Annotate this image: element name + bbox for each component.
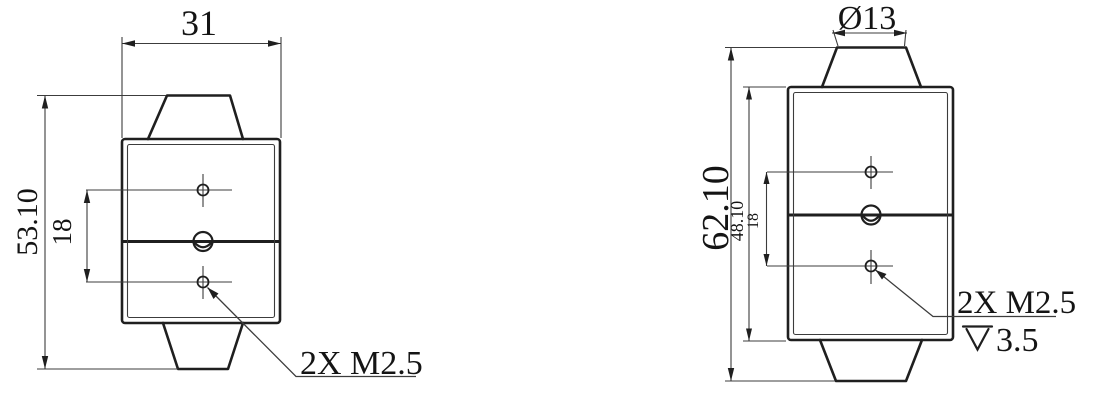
front-thread-callout: 2X M2.5 <box>300 345 423 382</box>
side-thread-depth-value: 3.5 <box>996 322 1039 359</box>
arrowhead <box>268 40 281 46</box>
side-center-hole-detent-arc <box>863 216 879 221</box>
front-view: 18 53.10 31 2X M2.5 <box>11 3 423 382</box>
front-center-hole-detent-arc <box>195 243 212 248</box>
arrowhead <box>764 254 770 266</box>
side-overall-height-dim: 62.10 <box>695 165 737 251</box>
side-hole-spacing-dim: 18 <box>745 213 762 229</box>
arrowhead <box>746 329 752 342</box>
side-thread-callout: 2X M2.5 <box>957 285 1076 321</box>
arrowhead <box>84 269 90 282</box>
depth-symbol-icon <box>963 327 992 350</box>
arrowhead <box>42 356 48 369</box>
arrowhead <box>746 87 752 100</box>
front-width-dim: 31 <box>181 3 217 43</box>
arrowhead <box>42 96 48 109</box>
arrowhead <box>84 190 90 203</box>
side-boss-diameter-dim: Ø13 <box>838 0 897 37</box>
side-view: 18 48.10 62.10 Ø13 2X M2.5 3.5 <box>695 0 1076 381</box>
extension-line <box>905 30 907 46</box>
engineering-drawing: 18 53.10 31 2X M2.5 <box>0 0 1093 400</box>
front-overall-height-dim: 53.10 <box>11 188 44 256</box>
side-top-boss-outline <box>822 48 921 88</box>
arrowhead <box>122 40 135 46</box>
arrowhead <box>728 48 734 61</box>
arrowhead <box>728 368 734 381</box>
front-bottom-boss-outline <box>163 323 243 369</box>
front-body-inner-edge <box>128 145 275 318</box>
side-bottom-boss-outline <box>820 340 922 381</box>
front-body-outline <box>122 139 280 323</box>
front-top-boss-outline <box>148 96 243 140</box>
arrowhead <box>764 172 770 184</box>
front-hole-spacing-dim: 18 <box>47 219 77 246</box>
drawing-sheet: 18 53.10 31 2X M2.5 <box>0 0 1093 400</box>
depth-symbol-arrow <box>967 329 989 350</box>
